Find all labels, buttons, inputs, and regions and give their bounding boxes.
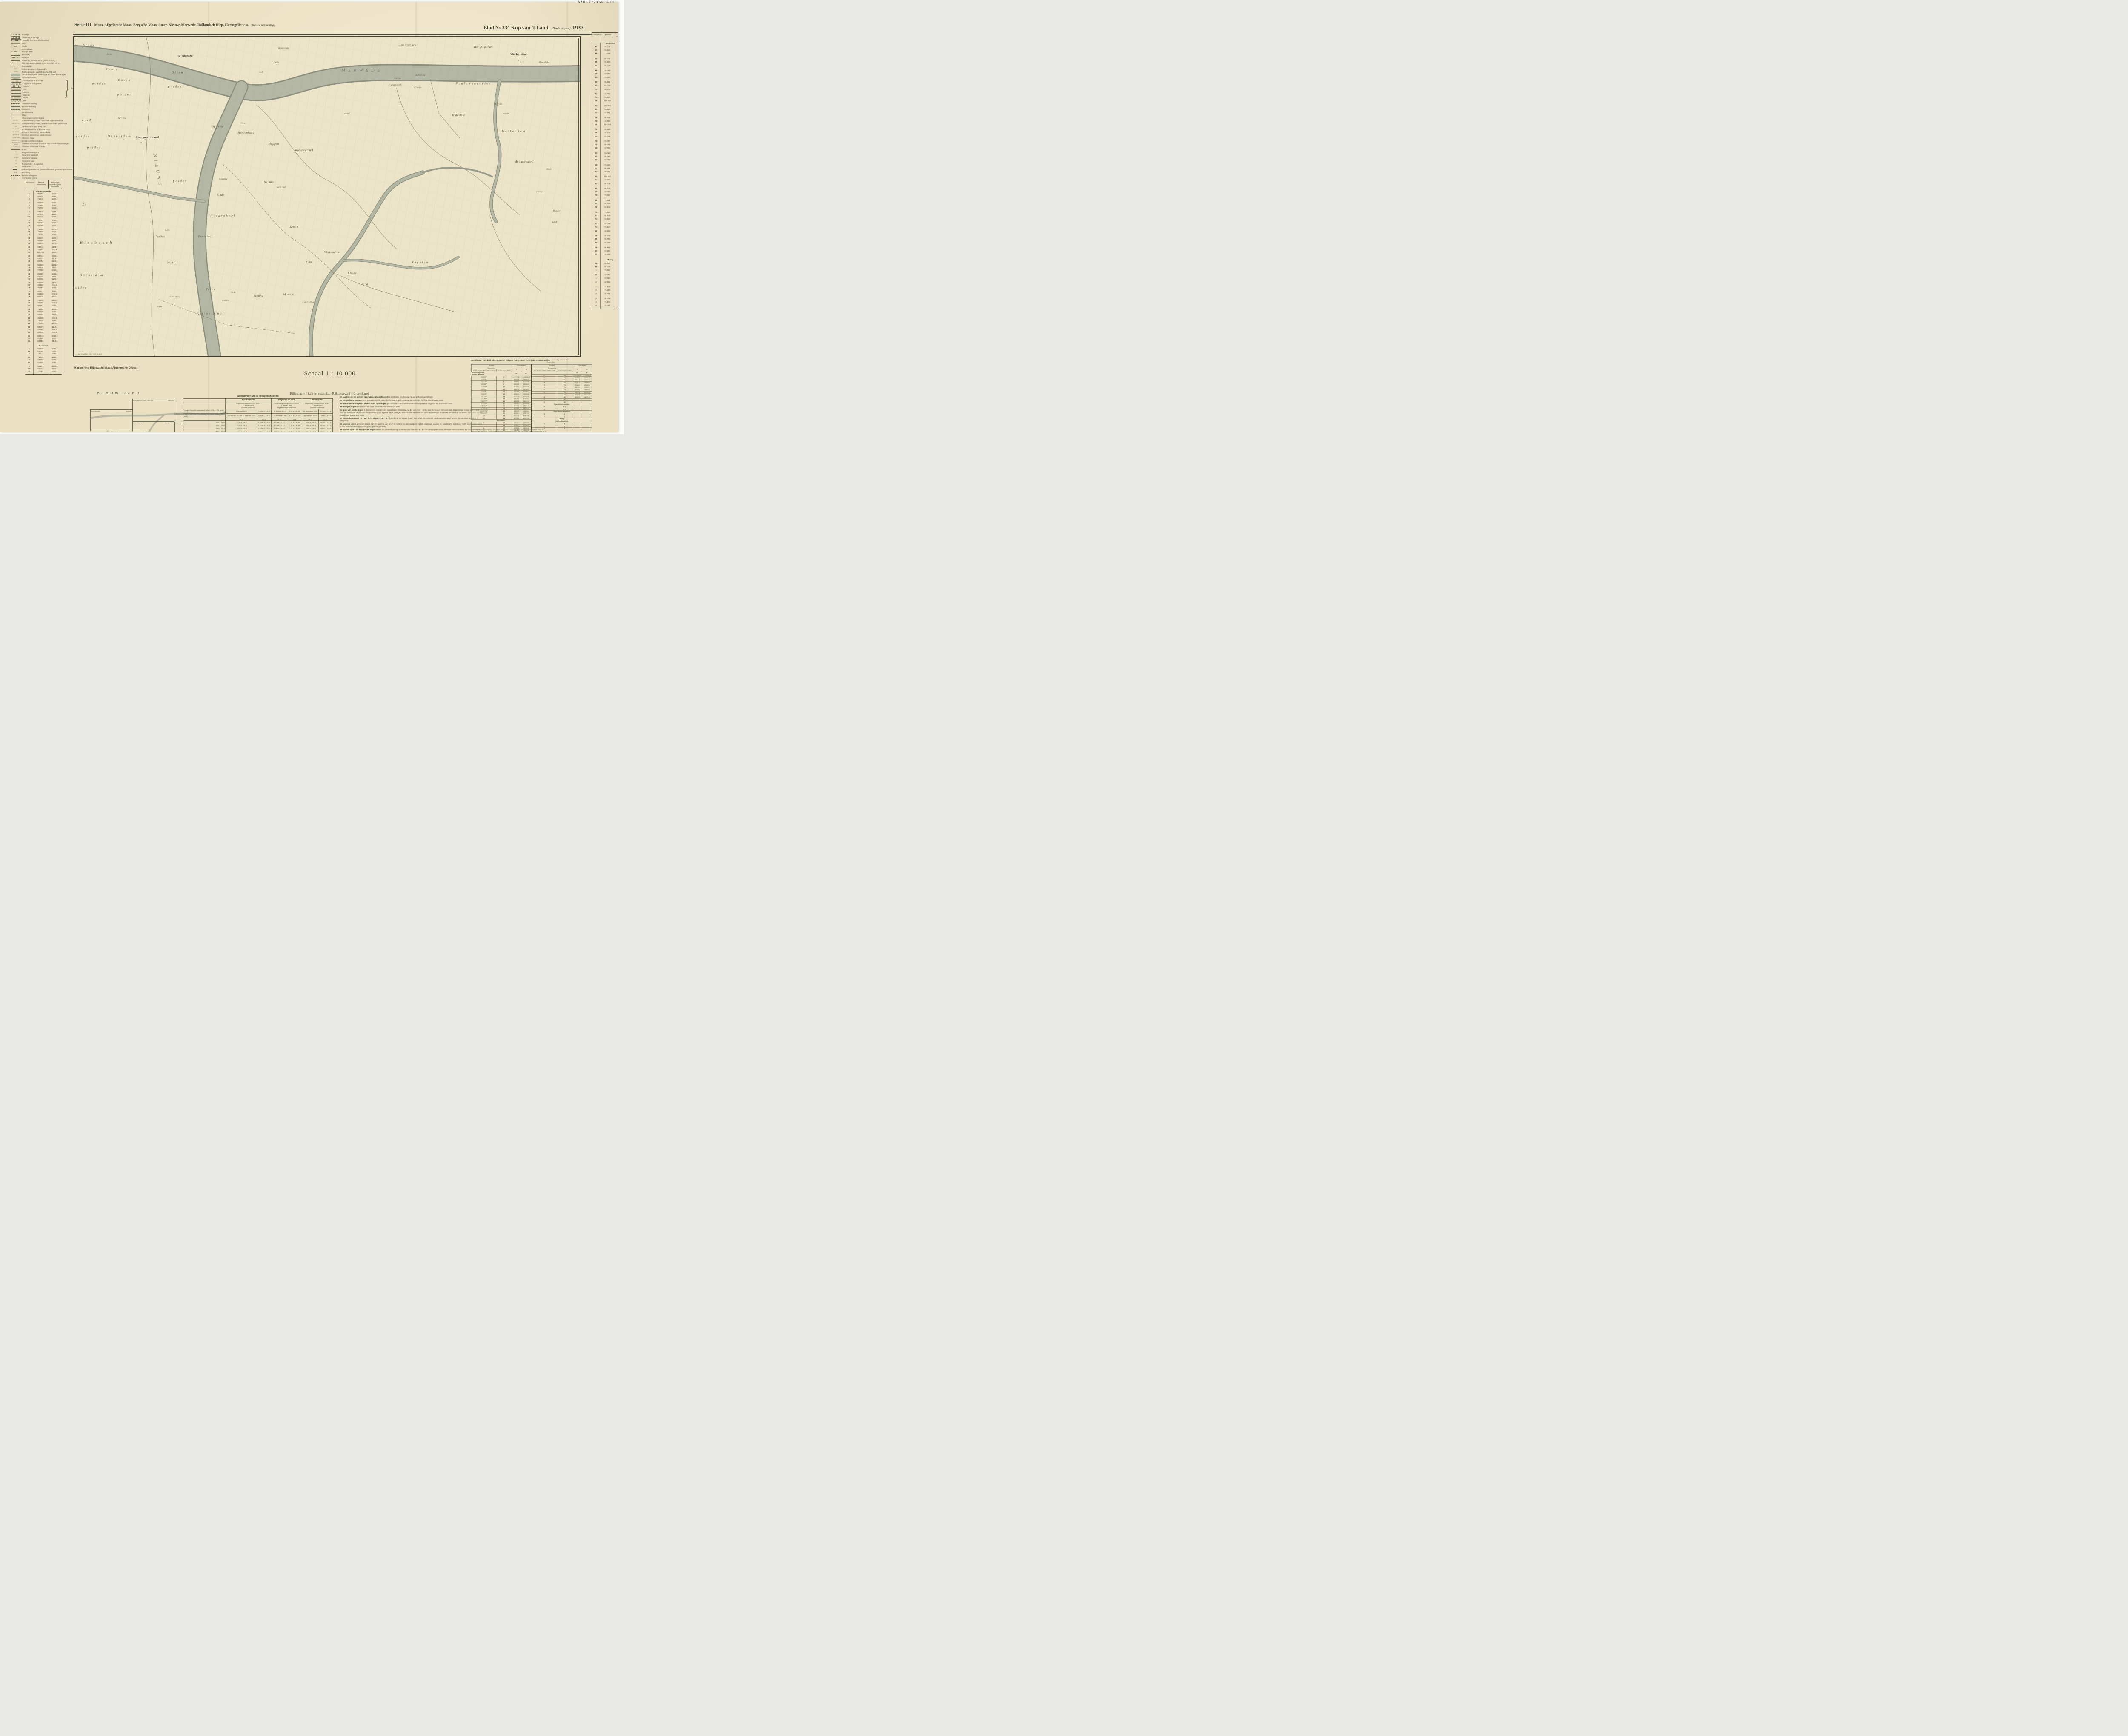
map-label: Ganzewei bbox=[303, 300, 316, 304]
tri-row: 1283.739126 bbox=[592, 64, 618, 67]
tri-cell-zijde: 1093.4 bbox=[48, 361, 62, 364]
tri-cell-driehoek: 20 bbox=[592, 152, 600, 155]
tri-cell-driehoek: 8 bbox=[25, 352, 33, 355]
tri-cell-hoek: 102.759 bbox=[33, 251, 48, 254]
tri-row: 7371.767111 bbox=[592, 140, 618, 143]
tri-cell-driehoek: 28 bbox=[592, 237, 600, 241]
map-label: Petrus bbox=[206, 288, 215, 291]
tri-row: 1878.436108 bbox=[592, 131, 618, 134]
tri-cell-hoek: 61.324 bbox=[600, 84, 615, 87]
map-label: Jonge Neele Ruigt bbox=[398, 44, 418, 46]
tri-cell-hoek: 55.972 bbox=[33, 242, 48, 245]
waterstanden-block: Waterstanden aan de Rijkspeilschalen te:… bbox=[183, 395, 333, 432]
map-label: Middelste bbox=[452, 114, 465, 117]
tri-row: 873.7121286.2 bbox=[25, 352, 62, 355]
tri-cell-driehoek: 24 bbox=[25, 340, 33, 343]
tri-cell-zijde: 170 bbox=[615, 182, 618, 186]
tri-cell-driehoek: 29 bbox=[592, 234, 600, 237]
legend-item: · Kᴹ R.PKilometerraaipaal bbox=[11, 157, 73, 160]
bladwijzer-panel: Serie I Blad №15Dordrecht bbox=[90, 409, 132, 431]
map-label: Kleine bbox=[394, 77, 401, 80]
map-label: Otten bbox=[172, 70, 184, 74]
legend-item: (1930)Rijkseigendom, jaartal van aanleg … bbox=[11, 71, 73, 74]
tri-row: 7339.35566 bbox=[592, 128, 618, 131]
tri-cell-driehoek: 52 bbox=[592, 199, 600, 202]
stone-icon bbox=[11, 39, 21, 41]
tri-cell-hoek: 71.428 bbox=[600, 163, 615, 167]
tri-cell-driehoek: 34 bbox=[592, 170, 600, 174]
bladwijzer-panel-place: Dordrecht bbox=[126, 410, 132, 412]
tri-row: 8886.601149 bbox=[592, 80, 618, 84]
legend-item-label: Griend bbox=[23, 85, 29, 87]
ws-date: 13 December 1933 bbox=[271, 414, 288, 418]
legend-item: ·4²Hectometer- of dijkpaal bbox=[11, 163, 73, 166]
tri-cell-zijde: 110 bbox=[615, 116, 618, 120]
tri-row: 1547.38268 bbox=[592, 273, 618, 277]
tri-cell-hoek: 89.581 bbox=[33, 304, 48, 307]
map-label: Gem. bbox=[107, 53, 112, 56]
ws-mv-value: 1.23 m + N.A.P. bbox=[302, 424, 318, 427]
tri-cell-hoek: 77.962 bbox=[33, 269, 48, 272]
tri-cell-zijde: 1169.8 bbox=[48, 313, 62, 316]
ws-period: 1881—1890 bbox=[183, 421, 226, 424]
tri-row: 1654.922110 bbox=[592, 116, 618, 120]
tri-row: 1968.8351152.7 bbox=[25, 295, 62, 298]
tri-row: 2946.23371 bbox=[592, 229, 618, 233]
legend-item-label: Bandijk bbox=[22, 34, 29, 36]
tri-cell-hoek: 61.992 bbox=[600, 249, 615, 253]
legend-item-label: Dam bbox=[22, 149, 26, 151]
tri-row: 874.9151424.7 bbox=[25, 198, 62, 200]
tri-cell-zijde: 110 bbox=[615, 187, 618, 190]
tri-cell-zijde: 71 bbox=[615, 229, 618, 233]
map-label: Sliedrecht bbox=[178, 55, 193, 58]
teeth2-icon bbox=[11, 36, 20, 39]
besch-icon bbox=[11, 112, 20, 112]
legend-item: Normaallijn bbox=[11, 65, 73, 68]
tri-cell-driehoek: 73 bbox=[592, 111, 600, 114]
tri-row: 276.29697 bbox=[592, 289, 618, 292]
map-label: Kleine bbox=[348, 272, 357, 275]
tri-cell-zijde: 122 bbox=[615, 246, 618, 249]
teeth-icon bbox=[11, 34, 20, 35]
tri-cell-zijde: 129 bbox=[615, 155, 618, 158]
legend-item-label: Voormalige bandijk bbox=[22, 37, 39, 39]
legend-item-label: Pakwerk bbox=[22, 108, 30, 110]
tri-row: 1461.324125 bbox=[592, 84, 618, 87]
tri-cell-zijde: 101 bbox=[615, 249, 618, 253]
tri-cell-driehoek: 1 bbox=[592, 269, 600, 272]
tri-cell-zijde: 1110.0 bbox=[48, 340, 62, 343]
coords-right-table: PuntenCoördinatenNummeringXIJ2e of 3e ui… bbox=[532, 364, 592, 430]
legend-item-label: Kilometerpaal bbox=[22, 160, 34, 162]
tri-cell-driehoek: 20 bbox=[592, 135, 600, 138]
dots-icon bbox=[11, 57, 20, 58]
tri-cell-zijde: 97 bbox=[615, 49, 618, 52]
ws-mv-value: 1.31 m + N.A.P. bbox=[271, 421, 288, 424]
tri-cell-driehoek: 53 bbox=[592, 163, 600, 167]
tri-cell-driehoek: 4 bbox=[592, 304, 600, 307]
tri-cell-hoek: 71.810 bbox=[600, 226, 615, 229]
tri-cell-hoek: 101.602 bbox=[600, 99, 615, 103]
mark-icon: IJzⁿ of Stⁿ bˢ bbox=[11, 140, 20, 141]
map-label: Werkendam bbox=[502, 129, 526, 133]
legend-item: Voetpad bbox=[11, 56, 73, 59]
ws-me: M. E. bbox=[257, 418, 271, 421]
scale-text: Schaal 1 : 10 000 bbox=[255, 370, 404, 378]
tri-cell-driehoek: 10 bbox=[25, 370, 33, 373]
legend-item: Steenen gebouw, of ijzeren of houten geb… bbox=[11, 168, 73, 171]
tri-cell-driehoek: 74 bbox=[592, 88, 600, 91]
legend-item-label: Puinbekleeding bbox=[22, 106, 36, 108]
sloot-icon bbox=[11, 118, 20, 118]
tri-row: 3061.992101 bbox=[592, 249, 618, 253]
tri-cell-hoek: 95.984 bbox=[33, 286, 48, 289]
tri-row: 8857.224101 bbox=[592, 60, 618, 64]
tri-row: 53106.207212 bbox=[592, 175, 618, 178]
ws-value: 1.45 m – N.A.P. bbox=[288, 414, 302, 418]
tri-row: 179.802111 bbox=[592, 269, 618, 272]
tri-cell-zijde: 170 bbox=[615, 167, 618, 170]
ws-me-value: 0.26 m + N.A.P. bbox=[257, 427, 271, 430]
tri-cell-zijde: 110 bbox=[615, 194, 618, 197]
tri-cell-hoek: 45.581 bbox=[600, 292, 615, 295]
repro-line2: Foto-Litho. bbox=[547, 361, 555, 363]
tri-cell-driehoek: 2 bbox=[592, 280, 600, 284]
triangulation-table-right: DriehoekenHoeken(centecimaal)Tegenover-s… bbox=[592, 32, 618, 309]
water-icon bbox=[11, 74, 20, 76]
legend-item: Muur bbox=[11, 114, 73, 117]
sheet-title: Blad № 33ᴬ Kop van 't Land. bbox=[483, 25, 550, 31]
legend-item-label: Stilstaand water bbox=[22, 77, 36, 79]
tri-cell-zijde: 103 bbox=[615, 108, 618, 111]
tri-row: 1558.7521124.0 bbox=[25, 260, 62, 263]
map-label: Achterste bbox=[415, 74, 425, 77]
dashdot-icon bbox=[11, 63, 20, 63]
tri-cell-driehoek: 74 bbox=[592, 226, 600, 229]
ws-me-value: 0.31 m + N.A.P. bbox=[257, 430, 271, 433]
map-area: StadsGem.NoordpolderBovenpolderOttenpold… bbox=[73, 36, 581, 357]
tri-cell-zijde: 97 bbox=[615, 289, 618, 292]
tri-cell-zijde: 108 bbox=[615, 131, 618, 134]
tri-row: 5369.514110 bbox=[592, 187, 618, 190]
tri-cell-zijde: 111 bbox=[615, 72, 618, 76]
tri-cell-hoek: 76.077 bbox=[600, 45, 615, 49]
ws-me-value: 0.46 m + N.A.P. bbox=[257, 421, 271, 424]
map-label: Aloise bbox=[118, 117, 126, 120]
tri-cell-driehoek: 52 bbox=[592, 182, 600, 186]
map-label: polder bbox=[157, 306, 163, 308]
ws-value: 3.41 m + N.A.P. bbox=[319, 409, 333, 413]
tri-row: 1059.037104 bbox=[592, 57, 618, 60]
legend-item: ·VMVerkenmerk van het N.A.P bbox=[11, 125, 73, 128]
tri-cell-zijde: 108 bbox=[615, 146, 618, 150]
tri-cell-zijde: 88 bbox=[615, 241, 618, 244]
tri-cell-driehoek: 3 bbox=[592, 300, 600, 304]
ws-mv-value: 1.22 m + N.A.P. bbox=[302, 421, 318, 424]
map-label: Muggenwaard bbox=[515, 160, 534, 163]
bladwijzer-panel-place: Sliedrecht bbox=[168, 400, 174, 401]
tri-row: 1080.0451403.1 bbox=[25, 216, 62, 218]
tri-cell-zijde: 149 bbox=[615, 99, 618, 103]
waterstanden-table-grid: WerkendamKop van 't LandDeeneplaatRegelm… bbox=[183, 398, 333, 433]
tri-row: 1895.9841441.4 bbox=[25, 286, 62, 289]
tri-row: 3437.68196 bbox=[592, 170, 618, 174]
map-label: Gem. bbox=[241, 122, 246, 125]
mark-icon: ·VM bbox=[11, 126, 20, 127]
tri-cell-zijde: 68 bbox=[615, 273, 618, 277]
legend-item-label: Dijk bbox=[22, 42, 26, 44]
tri-cell-driehoek: 14 bbox=[25, 251, 33, 254]
tri-row: 1077.2821363.5 bbox=[25, 370, 62, 373]
ws-value: 0.83 m – N.A.P. bbox=[257, 414, 271, 418]
mark-icon: 1584 bbox=[11, 69, 20, 70]
map-label: Made bbox=[283, 292, 295, 296]
mark-icon: (1930) bbox=[11, 71, 20, 72]
tri-cell-hoek: 42.951 bbox=[600, 111, 615, 114]
tri-cell-hoek: 58.693 bbox=[33, 313, 48, 316]
legend-item-label: IJzeren of steenen buis bbox=[22, 140, 43, 142]
tri-cell-zijde: 103 bbox=[615, 214, 618, 217]
tri-row: 2158.6931169.8 bbox=[25, 313, 62, 316]
ws-station-name: Deeneplaat bbox=[302, 398, 332, 402]
legend-item: Gemeente grens bbox=[11, 177, 73, 180]
tri-cell-hoek: 71.030 bbox=[33, 207, 48, 209]
ws-me-value: 0.61 m – N.A.P. bbox=[319, 424, 333, 427]
tri-cell-zijde: 1441.4 bbox=[48, 286, 62, 289]
tri-row: 7471.810126 bbox=[592, 226, 618, 229]
tri-cell-driehoek: 73 bbox=[592, 202, 600, 206]
tri-row: 7468.929121 bbox=[592, 217, 618, 221]
ws-station-name: Kop van 't Land bbox=[271, 398, 302, 402]
tri-row: 1473.428104 bbox=[592, 76, 618, 79]
ws-me-value: 0.32 m + N.A.P. bbox=[257, 424, 271, 427]
puin-icon bbox=[11, 106, 20, 107]
tri-cell-zijde: 1124.0 bbox=[48, 260, 62, 263]
muur-icon bbox=[11, 115, 20, 115]
map-label: Dubbeldam bbox=[108, 134, 132, 138]
coords-table: PuntenCoördinatenNummeringXIJ2e of 3e ui… bbox=[471, 364, 592, 432]
coords-m: m. bbox=[512, 372, 521, 376]
tri-cell-zijde: 1377.1 bbox=[48, 242, 62, 245]
tri-cell-hoek: 76.538 bbox=[600, 211, 615, 214]
legend-item: Landweg bbox=[11, 53, 73, 56]
tri-cell-zijde: 111 bbox=[615, 158, 618, 162]
coords-cell: — 37736.1 bbox=[512, 376, 521, 378]
parcel-texture bbox=[74, 37, 580, 356]
tri-cell-hoek: 73.712 bbox=[33, 352, 48, 355]
tri-cell-driehoek: 88 bbox=[592, 80, 600, 84]
tri-row: 7452.075111 bbox=[592, 88, 618, 91]
map-label: Maltha bbox=[254, 294, 263, 297]
ldash-icon bbox=[11, 66, 20, 66]
map-label: Hengst polder bbox=[474, 45, 493, 49]
tri-cell-hoek: 78.436 bbox=[600, 131, 615, 134]
tri-cell-zijde: 942.8 bbox=[48, 331, 62, 334]
tri-cell-driehoek: 12 bbox=[592, 64, 600, 67]
tri-cell-zijde: 123 bbox=[615, 52, 618, 55]
tri-cell-hoek: 86.601 bbox=[600, 80, 615, 84]
mark-icon: Stⁿ doorl. m schotb bbox=[11, 142, 20, 145]
tri-cell-hoek: 37.681 bbox=[600, 170, 615, 174]
tri-row: 1165.4861227.8 bbox=[25, 224, 62, 227]
legend-item: ←—□Kilometerraaibord bbox=[11, 154, 73, 157]
tri-row: 345.58168 bbox=[592, 292, 618, 295]
tri-cell-zijde: 126 bbox=[615, 226, 618, 229]
tri-cell-driehoek: 20 bbox=[25, 304, 33, 307]
mark-icon: ←—□ bbox=[11, 154, 20, 156]
tri-row: 18100.269145 bbox=[592, 123, 618, 126]
tri-row: 7254.533103 bbox=[592, 214, 618, 217]
legend-item-label: Griendkade bbox=[22, 48, 32, 50]
map-label: Kievits bbox=[414, 86, 421, 89]
tri-cell-hoek: 98.152 bbox=[600, 246, 615, 249]
coords-sec: DriehoekspuntenNieuwe Merwede bbox=[472, 372, 512, 376]
tri-cell-zijde: 66 bbox=[615, 128, 618, 131]
legend-item-label: Biezen bbox=[23, 91, 29, 93]
ws-me: M. E. bbox=[319, 418, 333, 421]
tri-cell-hoek: 84.935 bbox=[600, 280, 615, 284]
tri-row: 7376.538128 bbox=[592, 211, 618, 214]
tri-row: 284.93598 bbox=[592, 280, 618, 284]
ws-mv-value: 1.47 m + N.A.P. bbox=[226, 427, 257, 430]
tri-cell-driehoek: 88 bbox=[592, 69, 600, 72]
tri-cell-zijde: 1329.4 bbox=[48, 251, 62, 254]
tri-cell-driehoek: 2 bbox=[592, 297, 600, 300]
tri-table-body: Biesbosch8776.0771261051.315978872.60812… bbox=[592, 43, 618, 309]
waterstill-icon bbox=[11, 77, 20, 79]
tri-col-zijden: Tegenover-staande zijden in meters bbox=[615, 33, 618, 41]
ws-date: 26 November 1928 bbox=[302, 409, 318, 413]
legend-item-label: Landweg bbox=[22, 54, 30, 56]
tri-cell-driehoek: 18 bbox=[592, 123, 600, 126]
tri-cell-hoek: 39.856 bbox=[600, 253, 615, 256]
tri-row: 1677.9621359.8 bbox=[25, 269, 62, 272]
tri-cell-zijde: 110 bbox=[615, 135, 618, 138]
tri-table-header: DriehoekenHoeken(centecimaal)Tegenover-s… bbox=[25, 180, 62, 189]
legend-item: Dam bbox=[11, 148, 73, 151]
map-label: Dubbeldam bbox=[80, 273, 104, 277]
slik-icon bbox=[11, 99, 21, 102]
tri-row: 7253.769104 bbox=[592, 222, 618, 226]
coords-footnote: Is in de kolom „nummering 2e of 3e uitga… bbox=[471, 429, 598, 432]
ws-period-row: 1911—19201.48 m + N.A.P.0.31 m + N.A.P.1… bbox=[183, 430, 333, 433]
legend-item-label: Rijkseigendom, jaartal van aanleg enz bbox=[22, 71, 56, 73]
map-label: Spiering bbox=[219, 178, 228, 180]
ws-mv-value: 1.27 m + N.A.P. bbox=[271, 424, 288, 427]
map-label: waard bbox=[503, 112, 509, 115]
tri-cell-driehoek: 20 bbox=[592, 143, 600, 146]
tri-row: 1759.8061201.9 bbox=[25, 278, 62, 280]
map-label: Boven bbox=[118, 78, 131, 82]
legend-item-label: Boomgaard of boomen bbox=[23, 80, 43, 82]
ws-mvme-row: M. V.M. E.M. V.M. E.M. V.M. E. bbox=[183, 418, 333, 421]
tri-cell-hoek: 58.752 bbox=[33, 260, 48, 263]
legend-item: Lijn van 35 of 45 decimeter beneden M. E… bbox=[11, 62, 73, 65]
legend-item-label: Oeverlijn, lijn van M. E. (1921—1930) bbox=[22, 60, 55, 62]
legend-item-label: Provinciale grens bbox=[22, 174, 37, 177]
tri-cell-driehoek: 73 bbox=[592, 194, 600, 197]
tri-row: 5385.083129 bbox=[592, 155, 618, 158]
prov-icon bbox=[11, 175, 20, 176]
tri-cell-zijde: 107 bbox=[615, 237, 618, 241]
map-label: plaat bbox=[167, 260, 178, 264]
tri-col-hoeken: Hoeken(centecimaal) bbox=[601, 33, 615, 41]
legend-item-label: Muur bbox=[22, 114, 27, 116]
legend-item: ⊣= Stⁿ stuwSteenen stuw bbox=[11, 137, 73, 140]
tri-cell-driehoek: 1 bbox=[592, 277, 600, 280]
note-paragraph: De waterpassingen werden verricht in de … bbox=[340, 406, 483, 408]
ws-period: 1911—1920 bbox=[183, 430, 226, 433]
tri-row: 5371.428155 bbox=[592, 163, 618, 167]
tri-row: 2361.638942.8 bbox=[25, 331, 62, 334]
tri-cell-zijde: 1201.9 bbox=[48, 278, 62, 280]
coords-old-h: 2e of 3e uitgave (1877—1878 en 1913) bbox=[532, 369, 557, 372]
legend-item-label: Lijn van 35 of 45 decimeter beneden M. E… bbox=[22, 62, 60, 64]
tri-row: 178.12398 bbox=[592, 285, 618, 289]
ws-station-sub: Regelmatig waargenomen sedert1 Januari 1… bbox=[302, 402, 332, 409]
map-label: Oude bbox=[274, 61, 279, 64]
legend-item: Oeverlijn, lijn van M. E. (1921—1930) bbox=[11, 59, 73, 62]
mark-icon: · Kᴹ R.P bbox=[11, 157, 20, 159]
tri-cell-hoek: 82.209 bbox=[600, 135, 615, 138]
mark-icon: IJzⁿ-Stⁿ P.S. bbox=[11, 123, 20, 124]
coords-left-half: PuntenCoördinatenNummeringXIJ2e of 3e ui… bbox=[471, 364, 532, 432]
map-label: Kop van 't Land bbox=[136, 136, 159, 139]
tri-cell-zijde: 68 bbox=[615, 292, 618, 295]
ws-mv: M. V. bbox=[271, 418, 288, 421]
tri-cell-hoek: 79.802 bbox=[600, 269, 615, 272]
tri-cell-zijde: 155 bbox=[615, 163, 618, 167]
ws-mv-value: 1.38 m + N.A.P. bbox=[271, 430, 288, 433]
ws-me-value: 0.28 m – N.A.P. bbox=[288, 427, 302, 430]
repro-credit: Reproductie: Top. Dienst 1937. Foto-Lith… bbox=[547, 359, 592, 363]
tri-cell-hoek: 68.929 bbox=[600, 217, 615, 221]
edition-note: (Derde uitgave) bbox=[552, 27, 570, 30]
tri-cell-hoek: 61.062 bbox=[600, 241, 615, 244]
tri-cell-zijde: 1152.7 bbox=[48, 295, 62, 298]
tri-cell-driehoek: 88 bbox=[592, 52, 600, 55]
tri-cell-zijde: 71 bbox=[615, 234, 618, 237]
tri-cell-driehoek: 73 bbox=[592, 120, 600, 123]
map-label: Stads bbox=[83, 43, 95, 47]
triangulation-table-left: DriehoekenHoeken(centecimaal)Tegenover-s… bbox=[25, 180, 62, 375]
note-lead: De liggende cijfers bbox=[340, 423, 356, 425]
tri-cell-hoek: 106.207 bbox=[600, 175, 615, 178]
tri-cell-driehoek: 72 bbox=[592, 214, 600, 217]
ws-me: M. E. bbox=[288, 418, 302, 421]
map-label: waard bbox=[536, 191, 542, 193]
dijk-icon bbox=[11, 43, 20, 44]
tri-col-hoeken: Hoeken(centecimaal) bbox=[34, 180, 49, 189]
legend-item: Stⁿ doorl. m schotbSteenen of houten doo… bbox=[11, 143, 73, 146]
tri-cell-hoek: 46.233 bbox=[600, 229, 615, 233]
mark-icon: ·4² bbox=[11, 163, 20, 164]
tri-cell-hoek: 51.625 bbox=[33, 361, 48, 364]
tri-cell-driehoek: 74 bbox=[592, 96, 600, 99]
tri-col-driehoeken: Driehoeken bbox=[25, 180, 34, 189]
note-paragraph: De staande cijfers bij de dijken en wege… bbox=[340, 429, 483, 432]
tri-cell-hoek: 51.315 bbox=[600, 49, 615, 52]
tri-cell-zijde: 126 bbox=[615, 45, 618, 49]
ws-sub-row: Regelmatig waargenomen sedert1 Januari 1… bbox=[183, 402, 333, 409]
tri-row: 2051.42096 bbox=[592, 152, 618, 155]
tri-cell-zijde: 1403.1 bbox=[48, 216, 62, 218]
tri-cell-zijde: 125 bbox=[615, 84, 618, 87]
note-paragraph: De liggende cijfers geven de hoogte aan … bbox=[340, 423, 483, 428]
ws-date: 11 Februari 1929 bbox=[302, 414, 318, 418]
tri-cell-hoek: 39.483 bbox=[600, 69, 615, 72]
